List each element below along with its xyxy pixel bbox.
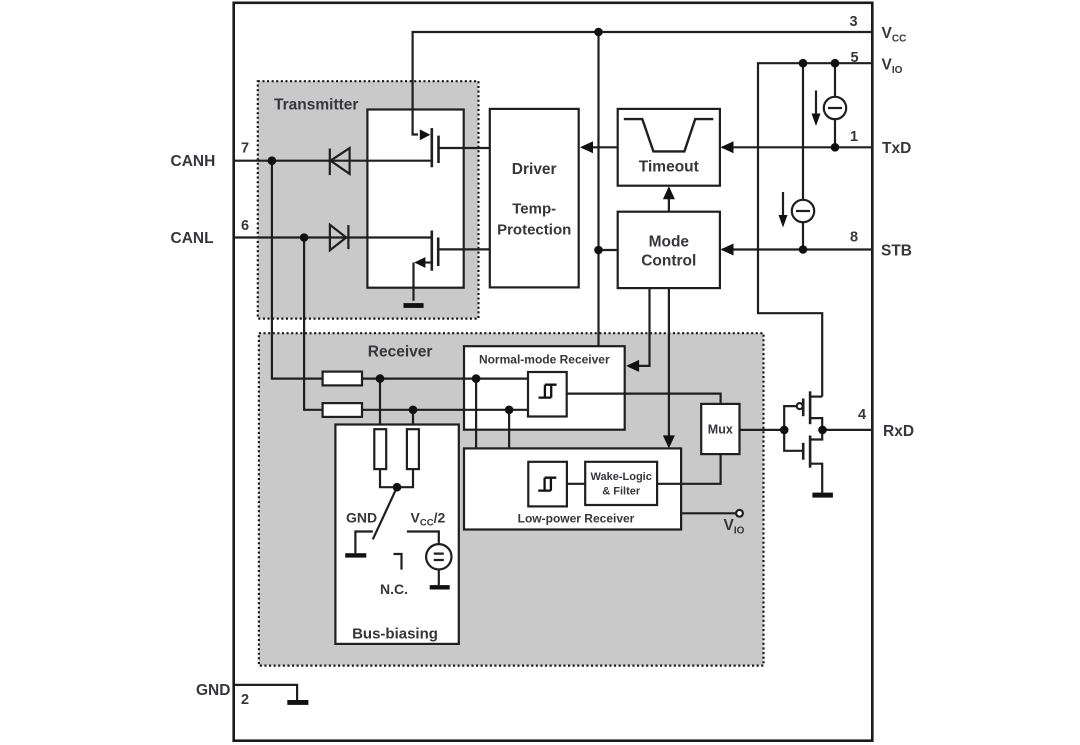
svg-text:Control: Control (641, 253, 696, 270)
svg-text:2: 2 (241, 692, 249, 708)
svg-text:RxD: RxD (883, 423, 914, 440)
svg-text:VIO: VIO (882, 57, 903, 77)
svg-text:Mux: Mux (708, 423, 733, 437)
svg-text:Low-power Receiver: Low-power Receiver (518, 512, 635, 526)
svg-text:CANL: CANL (171, 230, 214, 247)
svg-text:GND: GND (196, 682, 230, 699)
svg-text:STB: STB (881, 243, 912, 260)
svg-text:Normal-mode Receiver: Normal-mode Receiver (479, 353, 610, 367)
svg-text:Timeout: Timeout (639, 159, 699, 176)
svg-text:GND: GND (346, 510, 377, 526)
svg-text:CANH: CANH (171, 153, 216, 170)
svg-text:Wake-Logic: Wake-Logic (591, 471, 652, 483)
svg-text:Receiver: Receiver (368, 344, 433, 361)
svg-text:N.C.: N.C. (380, 581, 408, 597)
svg-text:5: 5 (851, 50, 859, 66)
svg-text:TxD: TxD (882, 140, 911, 157)
svg-text:7: 7 (241, 141, 249, 157)
svg-text:Protection: Protection (497, 222, 571, 239)
svg-text:Temp-: Temp- (512, 201, 556, 218)
svg-text:8: 8 (850, 230, 858, 246)
svg-text:1: 1 (850, 129, 858, 145)
svg-text:VCC: VCC (882, 25, 907, 45)
svg-text:Mode: Mode (649, 234, 690, 251)
svg-text:Transmitter: Transmitter (274, 97, 358, 114)
svg-text:4: 4 (858, 407, 866, 423)
svg-text:Bus-biasing: Bus-biasing (352, 626, 438, 643)
svg-text:6: 6 (241, 218, 249, 234)
svg-text:3: 3 (850, 14, 858, 30)
svg-text:& Filter: & Filter (602, 486, 641, 498)
svg-text:Driver: Driver (512, 161, 557, 178)
